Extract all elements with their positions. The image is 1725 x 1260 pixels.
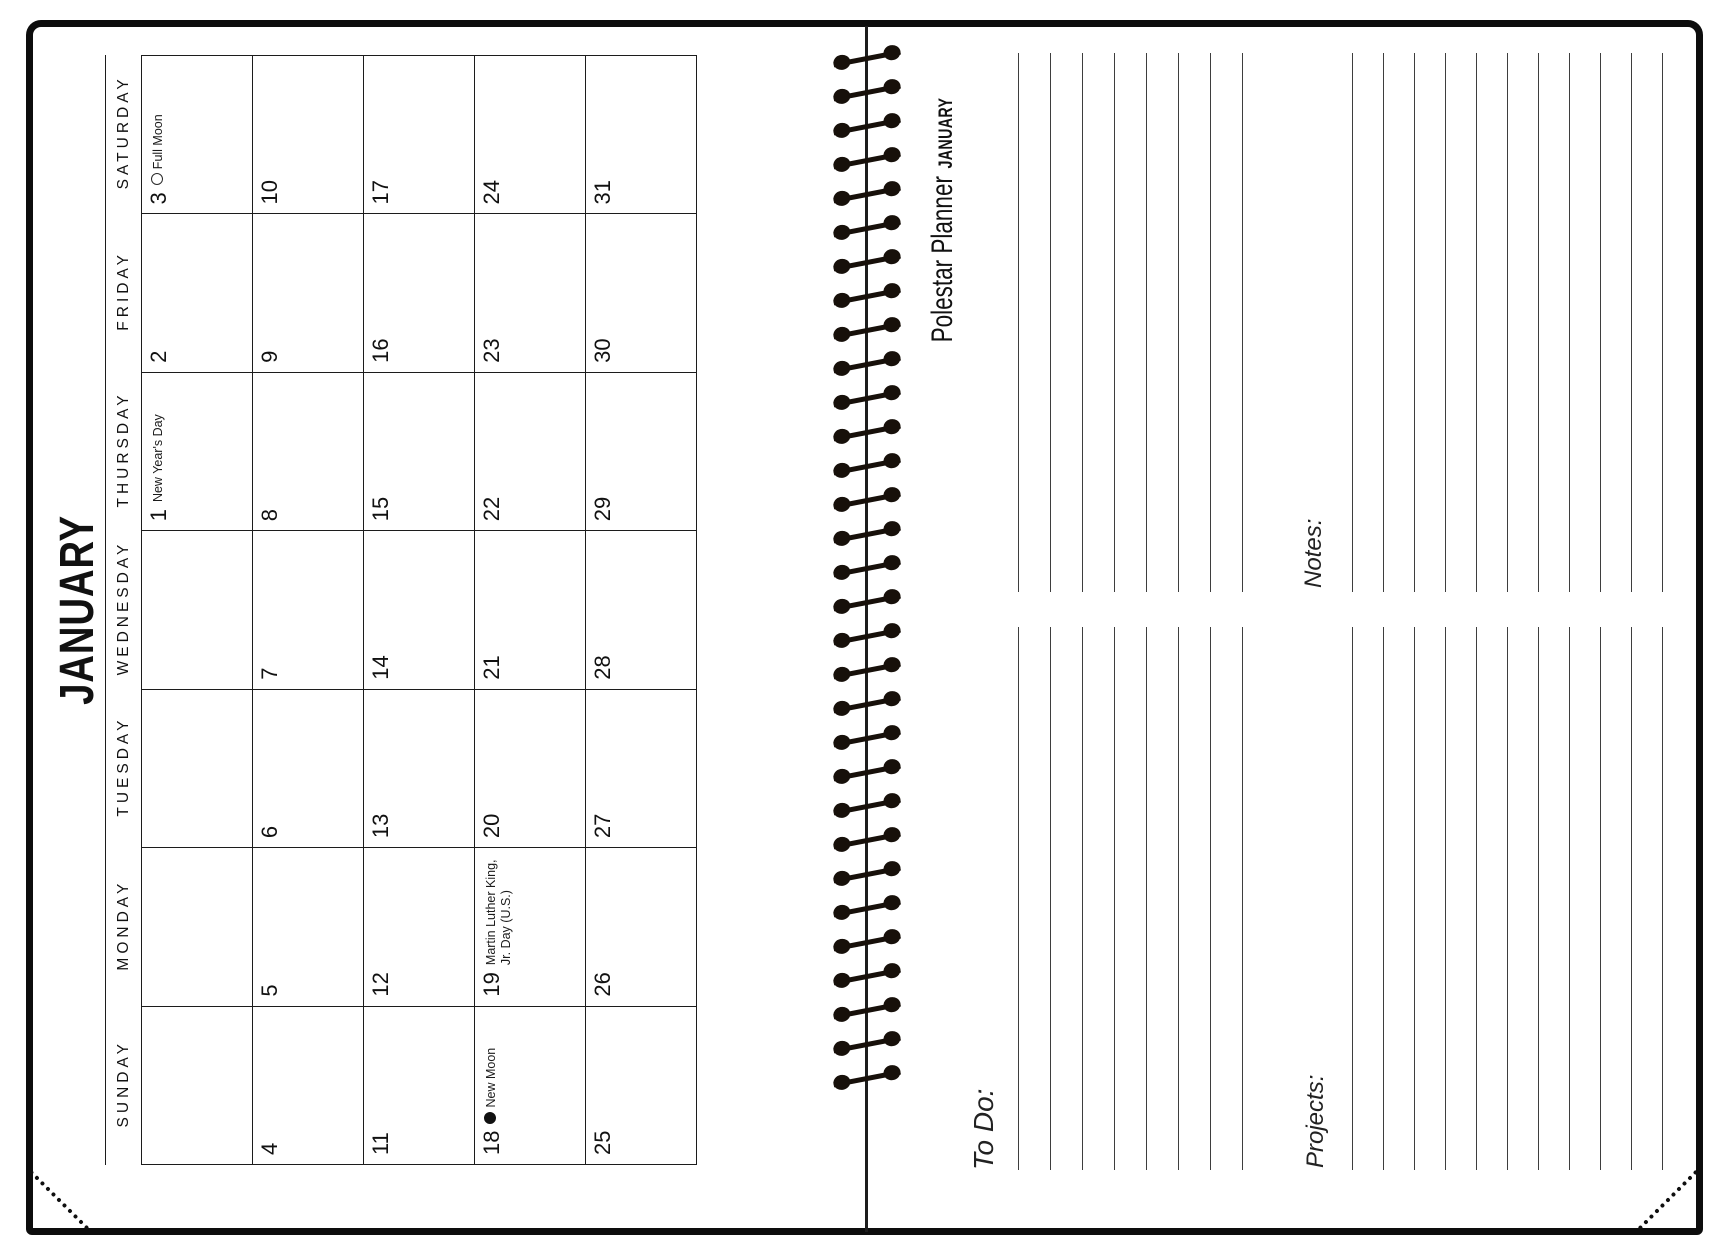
calendar-cell: 31	[586, 55, 697, 213]
date-number: 28	[591, 655, 614, 679]
notes-label: Notes:	[1300, 519, 1328, 588]
ruled-line	[1631, 627, 1632, 1170]
calendar-cell: 1New Year's Day	[142, 372, 253, 530]
calendar-cell: 5	[253, 847, 364, 1005]
event-label: Martin Luther King, Jr. Day (U.S.)	[480, 853, 515, 965]
ruled-line	[1631, 53, 1632, 592]
ruled-line	[1383, 627, 1384, 1170]
date-number: 25	[591, 1131, 614, 1155]
ruled-line	[1050, 53, 1051, 592]
ruled-line	[1507, 53, 1508, 592]
calendar-cell	[142, 1006, 253, 1164]
full-moon-icon	[151, 173, 163, 185]
calendar-cell: 12	[364, 847, 475, 1005]
ruled-line	[1600, 53, 1601, 592]
ruled-line	[1082, 53, 1083, 592]
day-header: SUNDAY	[115, 1006, 133, 1165]
calendar-cell	[142, 530, 253, 688]
date-number: 29	[591, 497, 614, 521]
ruled-line	[1600, 627, 1601, 1170]
event-label: New Year's Day	[147, 414, 166, 502]
ruled-line	[1383, 53, 1384, 592]
date-number: 31	[591, 180, 614, 204]
brand-month-label: JANUARY	[936, 98, 958, 169]
ruled-line	[1538, 627, 1539, 1170]
date-number: 24	[480, 180, 503, 204]
date-number: 12	[369, 972, 392, 996]
date-number: 13	[369, 814, 392, 838]
ruled-line	[1242, 53, 1243, 592]
ruled-line	[1662, 627, 1663, 1170]
calendar-cell: 20	[475, 689, 586, 847]
calendar-cell: 19Martin Luther King, Jr. Day (U.S.)	[475, 847, 586, 1005]
date-number: 22	[480, 497, 503, 521]
ruled-line	[1210, 627, 1211, 1170]
ruled-line	[1445, 53, 1446, 592]
ruled-line	[1445, 627, 1446, 1170]
calendar-cell: 7	[253, 530, 364, 688]
event-text: New Moon	[484, 1048, 498, 1108]
date-number: 19	[480, 972, 503, 996]
calendar-cell: 17	[364, 55, 475, 213]
calendar-cell: 30	[586, 213, 697, 371]
calendar-grid: SUNDAYMONDAYTUESDAYWEDNESDAYTHURSDAYFRID…	[105, 55, 697, 1165]
date-number: 27	[591, 814, 614, 838]
ruled-line	[1414, 627, 1415, 1170]
date-number: 23	[480, 338, 503, 362]
calendar-cell: 10	[253, 55, 364, 213]
date-number: 4	[258, 1143, 281, 1155]
calendar-cell: 25	[586, 1006, 697, 1164]
ruled-line	[1114, 53, 1115, 592]
calendar-cell	[142, 847, 253, 1005]
date-number: 11	[369, 1132, 392, 1155]
ruled-line	[1146, 53, 1147, 592]
calendar-cell: 16	[364, 213, 475, 371]
day-header: WEDNESDAY	[115, 531, 133, 690]
date-number: 18	[480, 1131, 503, 1155]
calendar-cell: 11	[364, 1006, 475, 1164]
ruled-line	[1352, 53, 1353, 592]
calendar-cell: 9	[253, 213, 364, 371]
date-number: 30	[591, 338, 614, 362]
calendar-cell: 15	[364, 372, 475, 530]
scanned-planner-spread: JANUARY SUNDAYMONDAYTUESDAYWEDNESDAYTHUR…	[0, 0, 1725, 1260]
calendar-cell: 13	[364, 689, 475, 847]
date-number: 2	[147, 351, 170, 363]
calendar-cell: 22	[475, 372, 586, 530]
event-text: New Year's Day	[151, 414, 165, 502]
date-number: 7	[258, 667, 281, 679]
ruled-line	[1538, 53, 1539, 592]
ruled-line	[1146, 627, 1147, 1170]
calendar-cell: 23	[475, 213, 586, 371]
date-number: 14	[369, 655, 392, 679]
date-number: 17	[369, 180, 392, 204]
calendar-cell: 18New Moon	[475, 1006, 586, 1164]
date-number: 26	[591, 972, 614, 996]
day-header-row: SUNDAYMONDAYTUESDAYWEDNESDAYTHURSDAYFRID…	[105, 55, 142, 1165]
event-text: Full Moon	[151, 114, 165, 169]
ruled-line	[1476, 627, 1477, 1170]
calendar-cell: 6	[253, 689, 364, 847]
ruled-line	[1242, 627, 1243, 1170]
ruled-line	[1178, 53, 1179, 592]
ruled-line	[1050, 627, 1051, 1170]
calendar-cell: 2	[142, 213, 253, 371]
ruled-line	[1018, 53, 1019, 592]
ruled-line	[1114, 627, 1115, 1170]
event-label: New Moon	[480, 1048, 499, 1124]
calendar-cell: 3Full Moon	[142, 55, 253, 213]
projects-label: Projects:	[1302, 1075, 1330, 1168]
ruled-line	[1414, 53, 1415, 592]
date-number: 3	[147, 192, 170, 204]
date-number: 21	[480, 655, 503, 679]
date-number: 16	[369, 338, 392, 362]
calendar-cell	[142, 689, 253, 847]
event-label: Full Moon	[147, 114, 166, 185]
date-number: 15	[369, 497, 392, 521]
brand-title: Polestar Planner	[926, 176, 960, 342]
calendar-cell: 29	[586, 372, 697, 530]
event-text: Martin Luther King, Jr. Day (U.S.)	[484, 859, 513, 965]
calendar-cell: 14	[364, 530, 475, 688]
new-moon-icon	[484, 1112, 496, 1124]
todo-label: To Do:	[968, 1089, 1000, 1170]
calendar-weeks: 1New Year's Day23Full Moon45678910111213…	[142, 55, 697, 1165]
date-number: 8	[258, 509, 281, 521]
calendar-cell: 24	[475, 55, 586, 213]
ruled-line	[1507, 627, 1508, 1170]
day-header: SATURDAY	[115, 55, 133, 214]
calendar-cell: 8	[253, 372, 364, 530]
day-header: MONDAY	[115, 848, 133, 1007]
notes-page-header: Polestar Planner JANUARY	[926, 98, 960, 343]
ruled-line	[1662, 53, 1663, 592]
day-header: TUESDAY	[115, 689, 133, 848]
ruled-line	[1178, 627, 1179, 1170]
ruled-line	[1018, 627, 1019, 1170]
date-number: 6	[258, 826, 281, 838]
calendar-cell: 21	[475, 530, 586, 688]
date-number: 1	[147, 509, 170, 521]
date-number: 9	[258, 351, 281, 363]
ruled-line	[1352, 627, 1353, 1170]
calendar-cell: 27	[586, 689, 697, 847]
day-header: FRIDAY	[115, 214, 133, 373]
day-header: THURSDAY	[115, 372, 133, 531]
date-number: 20	[480, 814, 503, 838]
ruled-line	[1476, 53, 1477, 592]
date-number: 5	[258, 984, 281, 996]
ruled-line	[1569, 53, 1570, 592]
calendar-cell: 26	[586, 847, 697, 1005]
month-title: JANUARY	[50, 166, 105, 1054]
ruled-line	[1569, 627, 1570, 1170]
ruled-line	[1082, 627, 1083, 1170]
calendar-cell: 28	[586, 530, 697, 688]
date-number: 10	[258, 180, 281, 204]
calendar-cell: 4	[253, 1006, 364, 1164]
ruled-line	[1210, 53, 1211, 592]
